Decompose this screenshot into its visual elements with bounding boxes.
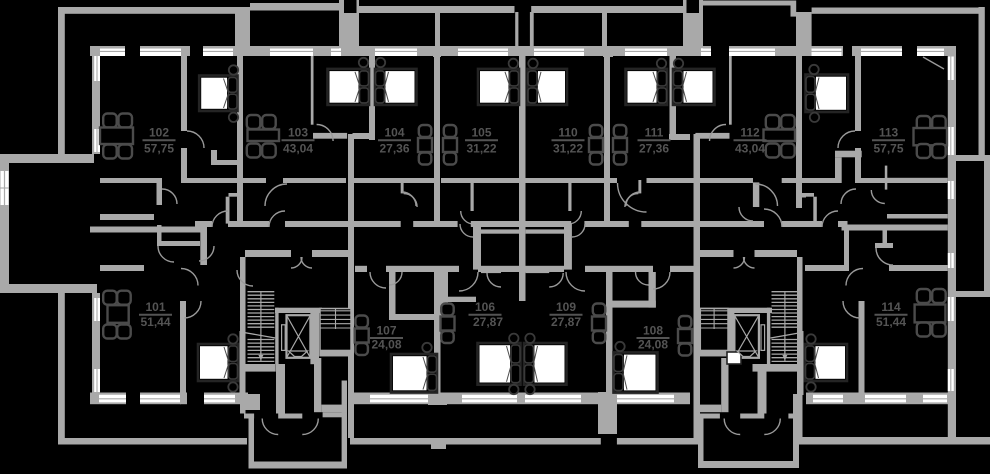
svg-text:24,08: 24,08: [371, 338, 401, 352]
svg-text:24,08: 24,08: [638, 338, 668, 352]
svg-text:108: 108: [643, 324, 663, 338]
svg-text:43,04: 43,04: [283, 142, 313, 156]
svg-text:27,87: 27,87: [551, 315, 581, 329]
svg-text:101: 101: [145, 300, 165, 314]
svg-text:114: 114: [881, 300, 901, 314]
svg-text:104: 104: [384, 126, 404, 140]
svg-text:103: 103: [288, 126, 308, 140]
svg-text:31,22: 31,22: [466, 142, 496, 156]
svg-text:112: 112: [740, 126, 760, 140]
svg-text:110: 110: [558, 126, 578, 140]
svg-text:105: 105: [471, 126, 491, 140]
svg-text:109: 109: [556, 300, 576, 314]
svg-text:107: 107: [376, 324, 396, 338]
svg-text:43,04: 43,04: [735, 142, 765, 156]
svg-text:106: 106: [475, 300, 495, 314]
svg-text:31,22: 31,22: [553, 142, 583, 156]
svg-text:51,44: 51,44: [140, 315, 170, 329]
svg-text:113: 113: [879, 126, 899, 140]
svg-text:27,36: 27,36: [639, 142, 669, 156]
svg-text:57,75: 57,75: [873, 142, 903, 156]
svg-text:111: 111: [645, 126, 664, 140]
svg-text:57,75: 57,75: [144, 142, 174, 156]
svg-text:27,87: 27,87: [473, 315, 503, 329]
svg-text:51,44: 51,44: [876, 315, 906, 329]
svg-text:27,36: 27,36: [379, 142, 409, 156]
svg-text:102: 102: [149, 126, 169, 140]
